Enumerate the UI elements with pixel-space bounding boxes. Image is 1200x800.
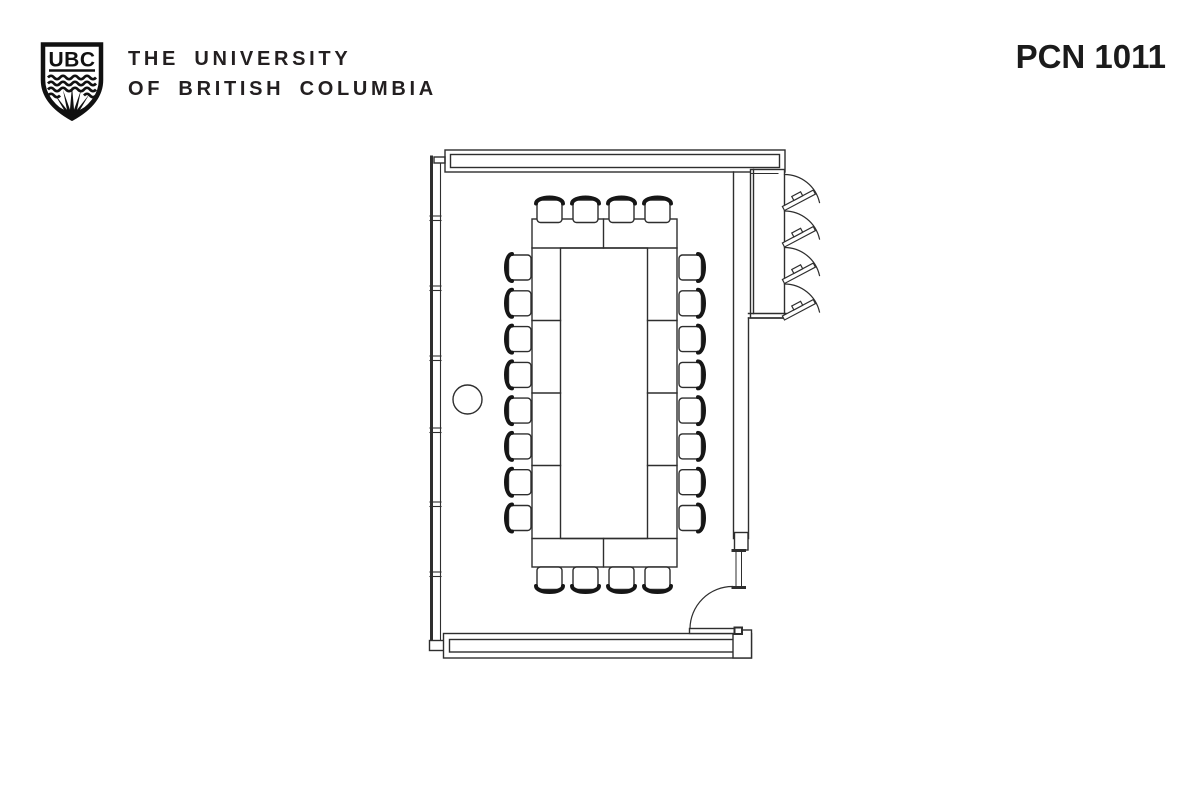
chair	[572, 198, 599, 223]
casement-window-1	[780, 175, 819, 211]
left-window-wall	[430, 157, 446, 651]
column	[453, 385, 482, 414]
door-leaf	[690, 629, 736, 634]
chair	[506, 469, 531, 496]
chair	[572, 567, 599, 592]
casement-window-3	[780, 248, 819, 284]
bottom-wall	[444, 630, 752, 658]
chair	[536, 567, 563, 592]
chair	[536, 198, 563, 223]
chair	[506, 505, 531, 532]
window-panel	[749, 170, 787, 319]
entry-door	[690, 551, 745, 635]
chair	[679, 433, 704, 460]
chair	[608, 198, 635, 223]
chair	[506, 397, 531, 424]
chair	[506, 326, 531, 353]
chair	[506, 254, 531, 281]
chair	[506, 433, 531, 460]
casement-windows	[780, 175, 819, 321]
casement-window-4	[780, 284, 819, 320]
door-swing-arc	[690, 587, 733, 629]
conference-table	[532, 219, 677, 567]
chair	[644, 198, 671, 223]
top-wall	[445, 150, 785, 172]
room-plan-page: UBC THE UNIVERSITY OF BRI	[0, 0, 1200, 800]
chair	[679, 326, 704, 353]
chair	[608, 567, 635, 592]
chair	[679, 469, 704, 496]
chair	[679, 505, 704, 532]
chair	[679, 361, 704, 388]
casement-window-2	[780, 211, 819, 247]
chair	[679, 397, 704, 424]
chair	[506, 290, 531, 317]
right-wall	[734, 172, 749, 550]
chair	[679, 254, 704, 281]
chair	[644, 567, 671, 592]
floor-plan-drawing	[0, 0, 1200, 800]
chair	[679, 290, 704, 317]
chair	[506, 361, 531, 388]
